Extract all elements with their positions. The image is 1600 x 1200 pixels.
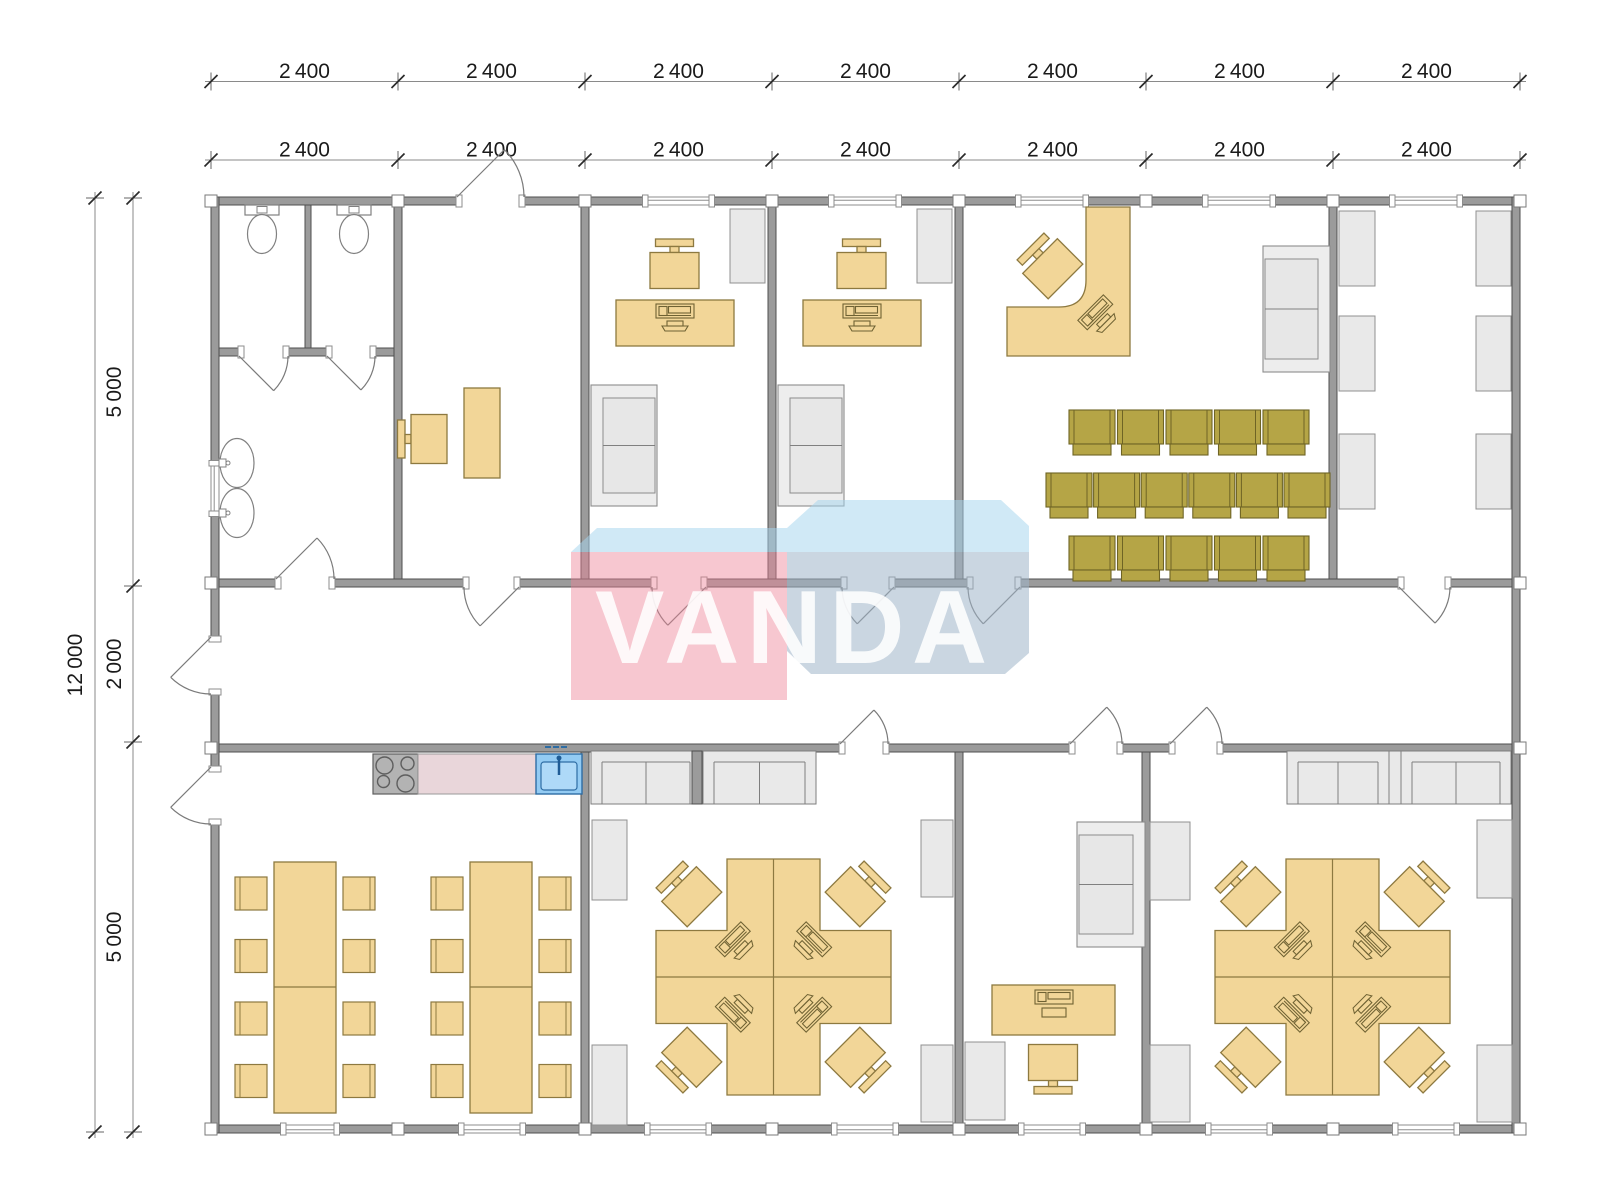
svg-text:12 000: 12 000: [64, 634, 87, 697]
svg-text:2 400: 2 400: [1214, 60, 1265, 83]
svg-text:2 400: 2 400: [1027, 60, 1078, 83]
svg-text:VANDA: VANDA: [595, 570, 995, 686]
svg-text:2 400: 2 400: [1027, 139, 1078, 162]
svg-text:2 400: 2 400: [279, 60, 330, 83]
svg-text:2 400: 2 400: [653, 60, 704, 83]
svg-text:2 400: 2 400: [1214, 139, 1265, 162]
svg-text:5 000: 5 000: [103, 367, 126, 418]
svg-text:2 400: 2 400: [840, 139, 891, 162]
svg-text:2 400: 2 400: [1401, 60, 1452, 83]
svg-text:2 400: 2 400: [466, 60, 517, 83]
svg-text:2 400: 2 400: [466, 139, 517, 162]
svg-text:5 000: 5 000: [103, 912, 126, 963]
svg-text:2 400: 2 400: [279, 139, 330, 162]
svg-text:2 400: 2 400: [1401, 139, 1452, 162]
svg-text:2 000: 2 000: [103, 639, 126, 690]
svg-text:2 400: 2 400: [840, 60, 891, 83]
svg-text:2 400: 2 400: [653, 139, 704, 162]
